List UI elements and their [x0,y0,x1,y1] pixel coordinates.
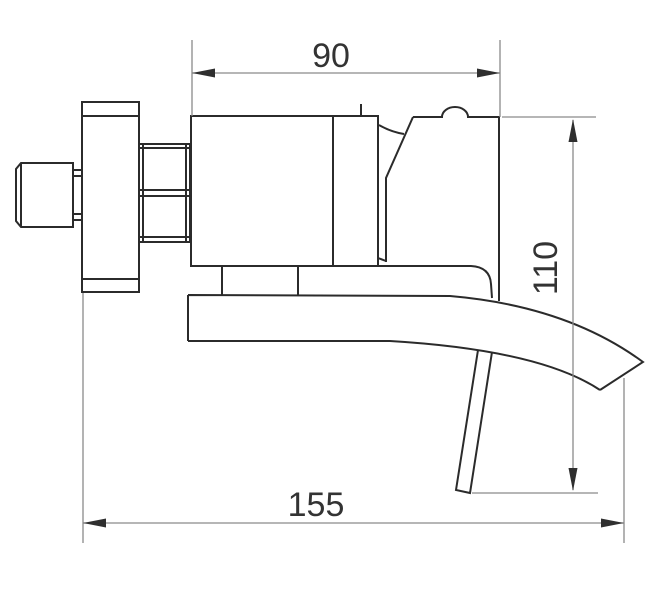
dim-155-label: 155 [288,486,345,524]
water-stream-outline [456,350,492,493]
dim-110-label: 110 [527,241,565,295]
pedestal-lines [222,266,298,295]
dim-155-arrow-right [601,519,624,528]
connector-nut-outline [139,144,190,242]
drawing-page: 90 110 155 [0,0,661,600]
dim-110-lines [472,117,598,493]
head-underside-line [378,266,492,298]
wall-knob-outline [16,163,73,227]
dim-90-label: 90 [312,37,350,75]
dim-110-arrow-down [569,468,578,491]
knob-stub-top [73,170,82,176]
dim-110-arrow-up [569,119,578,142]
lever-handle-lines [361,104,413,262]
wall-flange-outline [82,102,139,292]
valve-body-outline [191,116,378,266]
dim-90-arrow-right [477,69,500,78]
dim-90-arrow-left [192,69,215,78]
knob-stub-bottom [73,214,82,220]
dim-155-lines [83,293,624,543]
spout-plate-outline [188,295,643,390]
dim-155-arrow-left [83,519,106,528]
technical-drawing-canvas: 90 110 155 [0,0,661,600]
